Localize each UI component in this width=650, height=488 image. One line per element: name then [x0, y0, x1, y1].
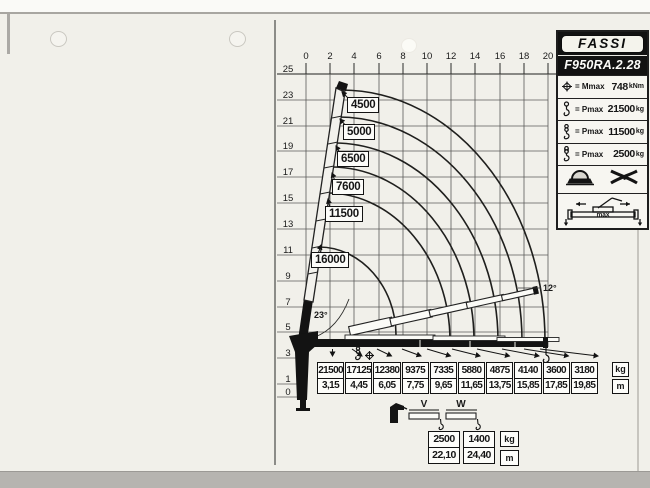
winch-hook-icon: [561, 146, 574, 162]
outreach-value: 17,85: [544, 379, 569, 393]
outreach-value: 24,40: [464, 448, 494, 463]
x-tick-label: 20: [543, 51, 554, 62]
outreach-value: 11,65: [459, 379, 484, 393]
outreach-value: 4,45: [346, 379, 371, 393]
brand-logo: FASSI: [561, 35, 644, 53]
spec-label: = Pmax: [575, 150, 603, 159]
load-column: 12380 6,05: [373, 362, 400, 394]
y-axis-labels: 25 23 21 19 17 15 13 11 9 7 5 3 1 0: [283, 64, 294, 398]
unit-m: m: [612, 379, 629, 394]
x-tick-label: 8: [400, 51, 405, 62]
hook-icon: [561, 101, 574, 117]
y-tick-label: 9: [285, 271, 290, 282]
moment-icon: [561, 80, 574, 93]
y-tick-label: 23: [283, 90, 294, 101]
load-column: 4140 15,85: [514, 362, 541, 394]
x-tick-label: 14: [470, 51, 481, 62]
rotation-winch-icon: [564, 167, 596, 192]
spec-unit: kg: [636, 151, 644, 158]
scanned-load-chart-page: 0 2 4 6 8 10 12 14 16 18 20 25 23 21 19 …: [0, 0, 650, 488]
feature-icons-row: [558, 165, 647, 193]
crane-base: [289, 331, 318, 411]
capacity-value: 5880: [459, 363, 484, 379]
x-axis-ticks: [306, 63, 548, 74]
spec-value: 2500: [613, 148, 635, 160]
spec-label: = Pmax: [575, 105, 603, 114]
x-tick-label: 2: [327, 51, 332, 62]
load-column: 21500 3,15: [317, 362, 344, 394]
outreach-value: 19,85: [572, 379, 597, 393]
spec-row-pmax3: = Pmax 2500 kg: [558, 143, 647, 166]
spec-value: 11500: [608, 126, 635, 138]
capacity-value: 3600: [544, 363, 569, 379]
extension-column: 1400 24,40: [463, 431, 495, 464]
outreach-value: 7,75: [403, 379, 428, 393]
y-tick-label: 21: [283, 116, 294, 127]
spec-panel: FASSI F950RA.2.28 = Mmax 748 kNm = Pmax …: [556, 30, 649, 230]
y-tick-label: 0: [285, 387, 290, 398]
x-axis-labels: 0 2 4 6 8 10 12 14 16 18 20: [303, 51, 553, 62]
spec-row-mmax: = Mmax 748 kNm: [558, 75, 647, 98]
manual-extension-units: kg m: [500, 431, 519, 466]
x-tick-label: 0: [303, 51, 308, 62]
load-table-units: kg m: [612, 362, 629, 394]
load-column: 3600 17,85: [543, 362, 570, 394]
stabilizer-row: max: [558, 193, 647, 228]
load-column: 9375 7,75: [402, 362, 429, 394]
crossed-out-icon: [607, 167, 641, 192]
x-tick-label: 12: [446, 51, 457, 62]
capacity-value: 21500: [318, 363, 343, 379]
curve-capacity-label: 5000: [343, 124, 375, 140]
spec-value: 748: [611, 81, 627, 93]
spec-row-pmax2: = Pmax 11500 kg: [558, 120, 647, 143]
y-tick-label: 3: [285, 348, 290, 359]
extension-w-label: W: [456, 399, 466, 410]
y-tick-label: 15: [283, 193, 294, 204]
extension-v-label: V: [421, 399, 428, 410]
y-tick-label: 1: [285, 374, 290, 385]
double-hook-icon: [561, 124, 574, 140]
spec-unit: kg: [636, 128, 644, 135]
y-tick-label: 17: [283, 167, 294, 178]
model-banner: F950RA.2.28: [558, 55, 647, 75]
load-column: 7335 9,65: [430, 362, 457, 394]
outreach-value: 22,10: [429, 448, 459, 463]
capacity-value: 1400: [464, 432, 494, 448]
x-tick-label: 4: [351, 51, 356, 62]
manual-extension-sketch: V W: [390, 399, 480, 430]
extension-w-hook-icon: [476, 424, 480, 430]
extension-column: 2500 22,10: [428, 431, 460, 464]
spec-row-pmax1: = Pmax 21500 kg: [558, 98, 647, 121]
capacity-value: 17125: [346, 363, 371, 379]
capacity-value: 4875: [487, 363, 512, 379]
outreach-value: 6,05: [374, 379, 399, 393]
y-tick-label: 11: [283, 245, 293, 256]
curve-capacity-label: 6500: [337, 151, 369, 167]
boom-angle-label: 23°: [314, 310, 328, 320]
y-tick-label: 7: [285, 297, 290, 308]
curve-capacity-label: 7600: [332, 179, 364, 195]
outreach-value: 9,65: [431, 379, 456, 393]
spec-value: 21500: [608, 103, 635, 115]
outreach-value: 3,15: [318, 379, 343, 393]
x-tick-label: 6: [376, 51, 381, 62]
unit-kg: kg: [500, 431, 519, 447]
spec-label: = Mmax: [575, 82, 605, 91]
unit-kg: kg: [612, 362, 629, 377]
unit-m: m: [500, 450, 519, 466]
manual-extension-table: 2500 22,10 1400 24,40: [428, 431, 495, 464]
extension-v-hook-icon: [439, 424, 443, 430]
brand-logo-frame: FASSI: [558, 32, 647, 55]
capacity-value: 3180: [572, 363, 597, 379]
y-tick-label: 13: [283, 219, 294, 230]
spec-label: = Pmax: [575, 127, 603, 136]
load-column: 4875 13,75: [486, 362, 513, 394]
capacity-value: 2500: [429, 432, 459, 448]
load-column: 17125 4,45: [345, 362, 372, 394]
capacity-value: 7335: [431, 363, 456, 379]
stabilizer-spread-icon: max: [562, 195, 644, 227]
y-tick-label: 19: [283, 141, 294, 152]
capacity-value: 12380: [374, 363, 399, 379]
x-tick-label: 18: [519, 51, 530, 62]
spec-unit: kg: [636, 106, 644, 113]
load-capacity-table: 21500 3,15 17125 4,45 12380 6,05 9375 7,…: [317, 362, 598, 394]
y-tick-label: 5: [285, 322, 290, 333]
y-tick-label: 25: [283, 64, 294, 75]
capacity-value: 9375: [403, 363, 428, 379]
x-tick-label: 10: [422, 51, 433, 62]
load-diagram-drawing: 0 2 4 6 8 10 12 14 16 18 20 25 23 21 19 …: [0, 0, 650, 488]
mmax-marker-icon: [365, 351, 374, 360]
horizontal-boom: [303, 335, 559, 348]
load-column: 3180 19,85: [571, 362, 598, 394]
load-column: 5880 11,65: [458, 362, 485, 394]
stabilizer-max-label: max: [596, 212, 609, 219]
outreach-value: 15,85: [515, 379, 540, 393]
curve-capacity-label: 11500: [325, 206, 363, 222]
capacity-value: 4140: [515, 363, 540, 379]
scan-bottom-strip: [0, 471, 650, 488]
outreach-value: 13,75: [487, 379, 512, 393]
curve-capacity-label: 16000: [311, 252, 349, 268]
x-tick-label: 16: [495, 51, 506, 62]
curve-capacity-label: 4500: [347, 97, 379, 113]
jib-angle-label: 12°: [543, 283, 557, 293]
spec-unit: kNm: [629, 83, 644, 90]
